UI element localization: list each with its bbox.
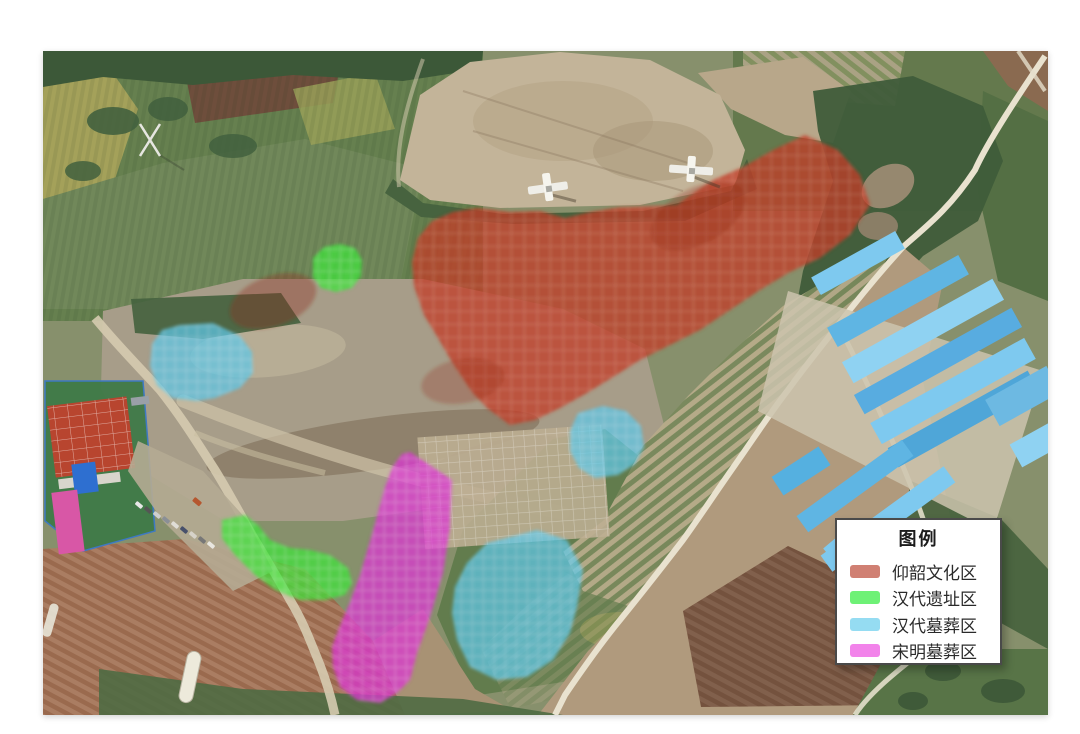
legend-item-han-tombs: 汉代墓葬区	[837, 611, 1000, 638]
legend: 图例 仰韶文化区 汉代遗址区 汉代墓葬区 宋明墓葬区	[835, 518, 1002, 665]
legend-item-yangshao: 仰韶文化区	[837, 558, 1000, 585]
legend-label-yangshao: 仰韶文化区	[892, 559, 977, 584]
legend-swatch-song-ming-tombs	[850, 644, 880, 657]
legend-swatch-yangshao	[850, 565, 880, 578]
legend-rows: 仰韶文化区 汉代遗址区 汉代墓葬区 宋明墓葬区	[837, 558, 1000, 664]
legend-swatch-han-site	[850, 591, 880, 604]
legend-item-han-site: 汉代遗址区	[837, 585, 1000, 612]
legend-title: 图例	[837, 525, 1000, 551]
legend-label-han-site: 汉代遗址区	[892, 585, 977, 610]
legend-label-han-tombs: 汉代墓葬区	[892, 612, 977, 637]
legend-swatch-han-tombs	[850, 618, 880, 631]
legend-label-song-ming-tombs: 宋明墓葬区	[892, 638, 977, 663]
map-figure: 图例 仰韶文化区 汉代遗址区 汉代墓葬区 宋明墓葬区	[0, 0, 1080, 734]
legend-item-song-ming-tombs: 宋明墓葬区	[837, 638, 1000, 665]
